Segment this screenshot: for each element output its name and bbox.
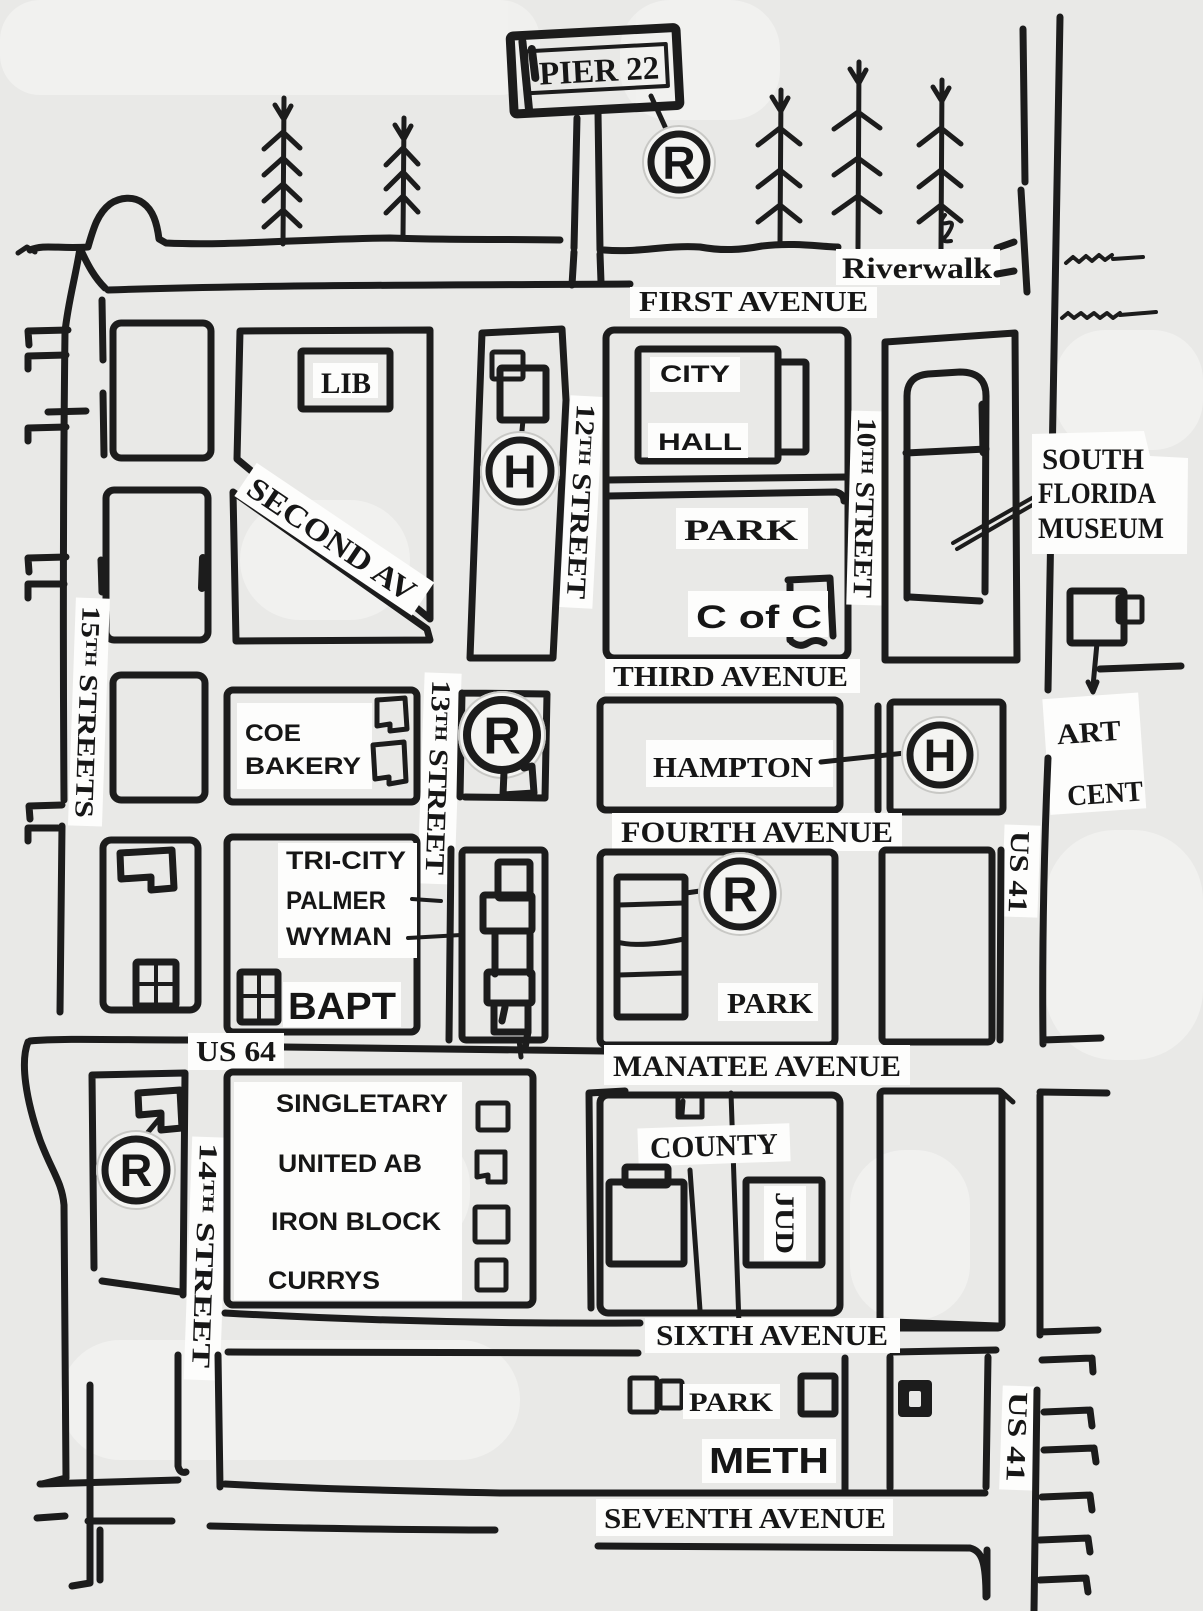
svg-text:C of C: C of C xyxy=(696,599,822,635)
svg-text:FLORIDA: FLORIDA xyxy=(1038,477,1156,510)
svg-text:CITY: CITY xyxy=(660,361,730,388)
svg-text:MUSEUM: MUSEUM xyxy=(1038,512,1164,545)
svg-text:LIB: LIB xyxy=(321,367,371,400)
svg-text:PARK: PARK xyxy=(684,514,799,547)
svg-text:UNITED AB: UNITED AB xyxy=(278,1150,422,1178)
svg-text:ART: ART xyxy=(1056,715,1122,751)
svg-text:US 64: US 64 xyxy=(196,1037,276,1068)
svg-text:R: R xyxy=(483,708,521,766)
svg-text:COUNTY: COUNTY xyxy=(650,1128,779,1165)
svg-text:THIRD AVENUE: THIRD AVENUE xyxy=(613,661,848,693)
svg-text:CURRYS: CURRYS xyxy=(268,1267,380,1295)
svg-text:BAKERY: BAKERY xyxy=(245,753,361,780)
svg-text:SOUTH: SOUTH xyxy=(1042,443,1144,476)
svg-text:SEVENTH AVENUE: SEVENTH AVENUE xyxy=(604,1503,886,1535)
svg-text:H: H xyxy=(503,446,536,498)
svg-text:WYMAN: WYMAN xyxy=(286,923,392,951)
svg-text:SINGLETARY: SINGLETARY xyxy=(276,1090,448,1118)
svg-text:FOURTH AVENUE: FOURTH AVENUE xyxy=(621,816,893,849)
svg-text:FIRST AVENUE: FIRST AVENUE xyxy=(639,286,868,318)
svg-text:PALMER: PALMER xyxy=(286,887,386,915)
svg-text:10TH STREET: 10TH STREET xyxy=(847,418,882,599)
svg-text:PARK: PARK xyxy=(727,989,813,1020)
svg-text:R: R xyxy=(722,869,757,923)
svg-text:R: R xyxy=(120,1145,153,1196)
svg-text:BAPT: BAPT xyxy=(288,986,396,1028)
svg-text:COE: COE xyxy=(245,720,301,747)
svg-text:TRI-CITY: TRI-CITY xyxy=(286,847,406,875)
svg-text:R: R xyxy=(662,137,695,189)
svg-text:PIER 22: PIER 22 xyxy=(538,50,660,92)
svg-text:METH: METH xyxy=(709,1440,829,1481)
svg-text:H: H xyxy=(924,730,957,781)
svg-text:Riverwalk: Riverwalk xyxy=(842,252,992,285)
svg-text:US 41: US 41 xyxy=(1003,831,1036,914)
svg-text:MANATEE AVENUE: MANATEE AVENUE xyxy=(613,1050,901,1083)
svg-text:HAMPTON: HAMPTON xyxy=(653,753,813,784)
svg-text:SIXTH AVENUE: SIXTH AVENUE xyxy=(656,1321,888,1352)
svg-text:PARK: PARK xyxy=(689,1388,774,1417)
svg-text:IRON BLOCK: IRON BLOCK xyxy=(271,1208,441,1236)
svg-text:JUD: JUD xyxy=(770,1192,799,1254)
svg-text:HALL: HALL xyxy=(658,429,742,456)
svg-text:CENT: CENT xyxy=(1066,775,1144,812)
svg-text:US 41: US 41 xyxy=(1000,1391,1033,1482)
